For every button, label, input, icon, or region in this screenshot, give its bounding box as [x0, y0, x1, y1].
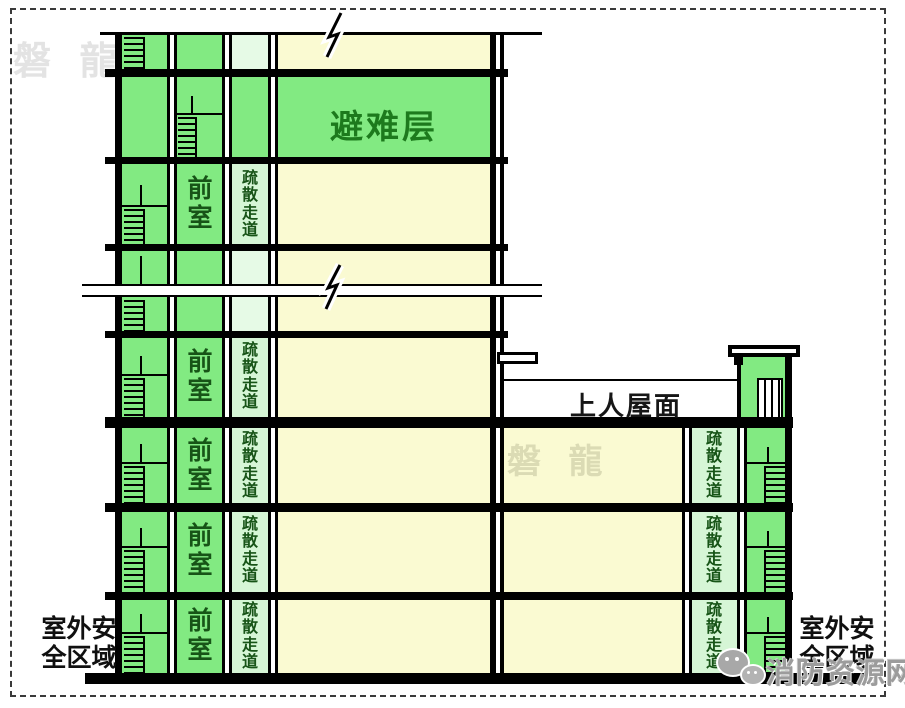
label-evacuation-corridor: 疏散走道: [240, 170, 260, 239]
stair-ladder: [124, 37, 145, 70]
stair-ladder: [764, 466, 785, 503]
label-evacuation-corridor: 疏散走道: [240, 342, 260, 411]
stair-ladder: [124, 636, 145, 673]
label-evacuation-corridor: 疏散走道: [240, 602, 260, 671]
stair-landing: [122, 205, 167, 207]
stair-landing: [122, 462, 167, 464]
stair-landing: [747, 632, 785, 634]
site-logo: 消防资源网: [716, 642, 896, 688]
label-front-room: 前室: [185, 437, 215, 495]
label-evacuation-corridor: 疏散走道: [240, 431, 260, 500]
label-refuge-floor: 避难层: [296, 100, 472, 148]
site-logo-text: 消防资源网: [766, 650, 905, 692]
stair-landing: [747, 462, 785, 464]
fire-evacuation-section-diagram: 磐 龍 磐 龍: [0, 0, 905, 708]
stair-ladder: [124, 209, 145, 244]
stair-tick: [140, 614, 142, 633]
stair-ladder: [178, 117, 197, 157]
label-front-room: 前室: [185, 607, 215, 665]
stair-tick: [191, 96, 193, 114]
wechat-bubbles-icon: [716, 646, 766, 688]
stair-ladder: [124, 550, 145, 592]
stair-landing: [177, 113, 222, 115]
stair-tick: [140, 528, 142, 547]
stair-tick: [767, 531, 769, 547]
stair-ladder: [124, 466, 145, 503]
outdoor-left-line1: 室外安: [34, 615, 124, 644]
outdoor-right-line1: 室外安: [792, 615, 882, 644]
label-front-room: 前室: [185, 348, 215, 406]
stair-tick: [140, 356, 142, 375]
label-front-room: 前室: [185, 522, 215, 580]
stair-tick: [767, 617, 769, 633]
label-evacuation-corridor: 疏散走道: [704, 431, 724, 500]
stair-ladder: [124, 378, 145, 417]
label-outdoor-safe-area-left: 室外安 全区域: [34, 615, 124, 673]
outdoor-left-line2: 全区域: [34, 644, 124, 673]
label-evacuation-corridor: 疏散走道: [704, 516, 724, 585]
stair-landing: [122, 374, 167, 376]
stair-tick: [767, 447, 769, 463]
label-front-room: 前室: [185, 175, 215, 233]
stair-tick: [140, 185, 142, 206]
stair-ladder: [124, 300, 145, 331]
stair-landing: [747, 546, 785, 548]
stair-tick: [140, 256, 142, 284]
stair-landing: [122, 632, 167, 634]
stair-tick: [140, 444, 142, 463]
stair-ladder: [764, 550, 785, 592]
label-evacuation-corridor: 疏散走道: [240, 516, 260, 585]
label-accessible-roof: 上人屋面: [556, 386, 696, 423]
stair-landing: [122, 546, 167, 548]
